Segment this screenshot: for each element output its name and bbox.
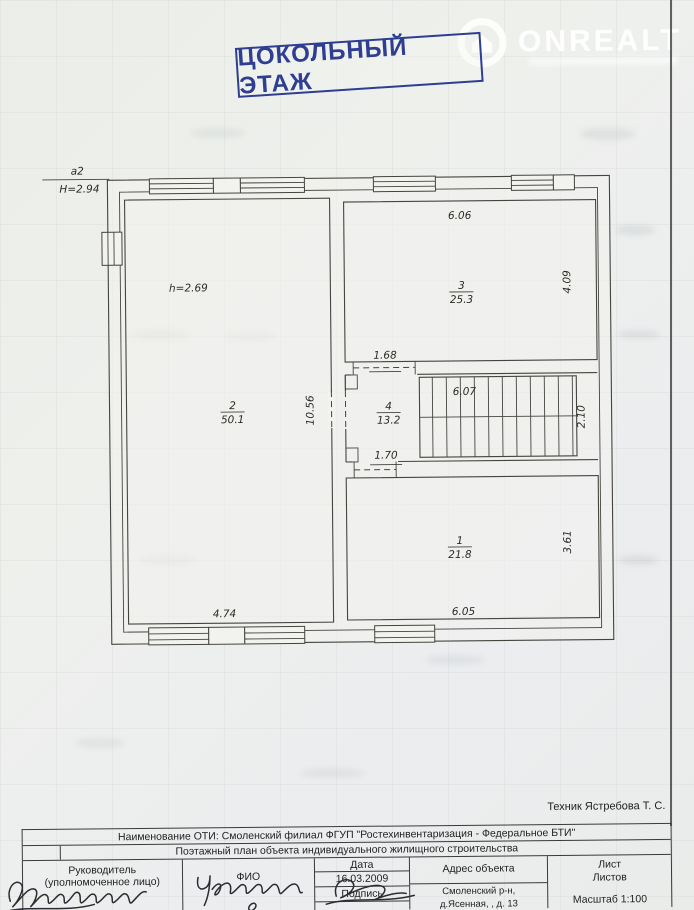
axis-leader-line [42, 179, 109, 180]
window-icon [149, 178, 213, 194]
fio-handwriting [190, 866, 322, 910]
technician-name: Техник Ястребова Т. С. [547, 800, 665, 813]
dim-4-74: 4.74 [213, 608, 237, 620]
dim-4-09: 4.09 [561, 270, 573, 294]
wall-pier [209, 627, 245, 644]
head-official-signature [4, 874, 174, 910]
dim-6-06: 6.06 [448, 210, 472, 222]
signature-flourish [322, 873, 426, 910]
window-icon [373, 176, 435, 192]
scanned-floor-plan-page: ONREALT ЦОКОЛЬНЫЙ ЭТАЖ [0, 0, 694, 910]
dim-10-56: 10.56 [304, 395, 316, 425]
address-cell: Адрес объекта Смоленский р-н, д.Ясенная,… [409, 856, 548, 909]
room1-area: 21.8 [448, 549, 472, 561]
address-line1: Смоленский р-н, [410, 883, 548, 897]
plan-paper-area [107, 175, 613, 644]
windows-bottom-wall [149, 625, 435, 645]
address-label: Адрес объекта [410, 856, 548, 884]
dim-1-68: 1.68 [373, 350, 397, 362]
page-fold-line [670, 0, 672, 826]
room1-number: 1 [456, 535, 463, 547]
room4-number: 4 [385, 401, 392, 413]
date-label: Дата [315, 857, 409, 872]
window-icon [245, 626, 305, 644]
dim-3-61: 3.61 [562, 530, 574, 554]
table-step-divider [60, 846, 61, 860]
dim-6-05: 6.05 [452, 606, 476, 618]
scale-value: Масштаб 1:100 [549, 893, 672, 907]
room2-ceiling-height: h=2.69 [169, 282, 208, 294]
window-icon [375, 625, 435, 643]
wall-pier [553, 175, 574, 190]
exterior-height-label: Н=2.94 [59, 183, 99, 195]
window-left-wall [102, 232, 122, 265]
sheet-scale-cell: Лист Листов Масштаб 1:100 [547, 855, 671, 908]
doc-type-text: Поэтажный план объекта индивидуального ж… [175, 842, 518, 857]
room4-area: 13.2 [377, 414, 401, 426]
room2-area: 50.1 [221, 414, 245, 426]
dim-6-07: 6.07 [453, 386, 477, 398]
room3-area: 25.3 [450, 294, 474, 306]
wall-pier [213, 178, 240, 193]
room2-number: 2 [229, 400, 236, 412]
window-icon [240, 177, 304, 193]
dim-2-10: 2.10 [576, 405, 588, 429]
axis-label: а2 [71, 166, 85, 178]
sheets-label: Листов [548, 871, 671, 885]
floor-plan-drawing: а2 Н=2.94 h=2.69 2 50.1 10.56 6.06 3 25.… [0, 0, 694, 793]
window-icon [511, 175, 553, 190]
address-line2: д.Ясенная, , д. 13 [410, 896, 548, 910]
window-icon [102, 232, 122, 265]
sheet-label: Лист [548, 858, 671, 872]
dim-1-70: 1.70 [374, 450, 398, 462]
room3-number: 3 [458, 280, 465, 292]
window-icon [149, 627, 209, 645]
